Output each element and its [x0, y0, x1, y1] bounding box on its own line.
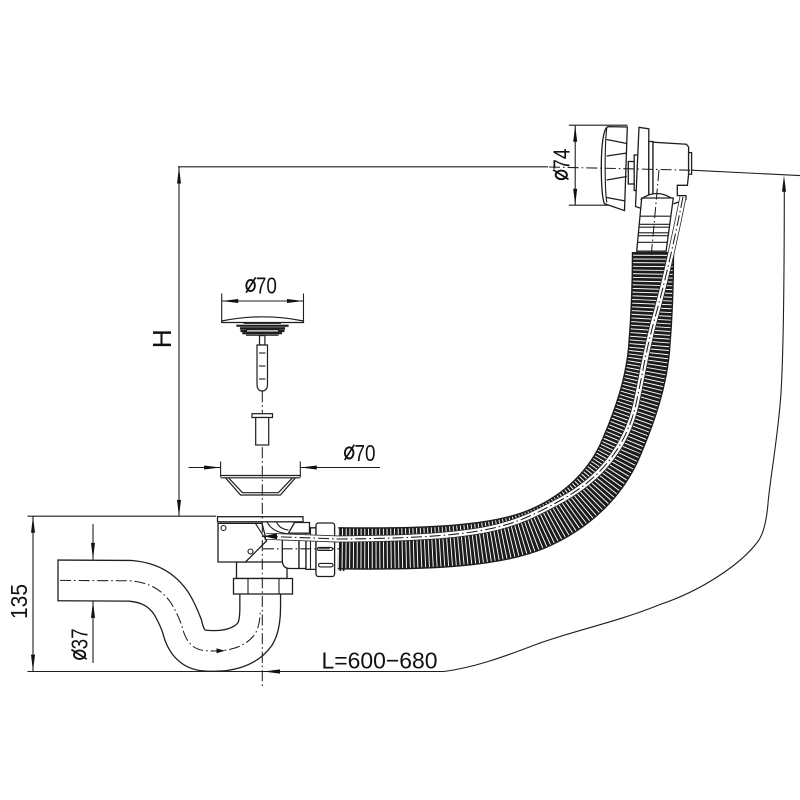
svg-text:L=600−680: L=600−680 [322, 648, 438, 674]
svg-text:70: 70 [256, 273, 277, 299]
svg-text:74: 74 [548, 149, 574, 170]
svg-text:70: 70 [355, 440, 376, 466]
svg-text:37: 37 [67, 628, 93, 649]
svg-text:H: H [149, 329, 177, 348]
svg-text:135: 135 [6, 584, 32, 619]
